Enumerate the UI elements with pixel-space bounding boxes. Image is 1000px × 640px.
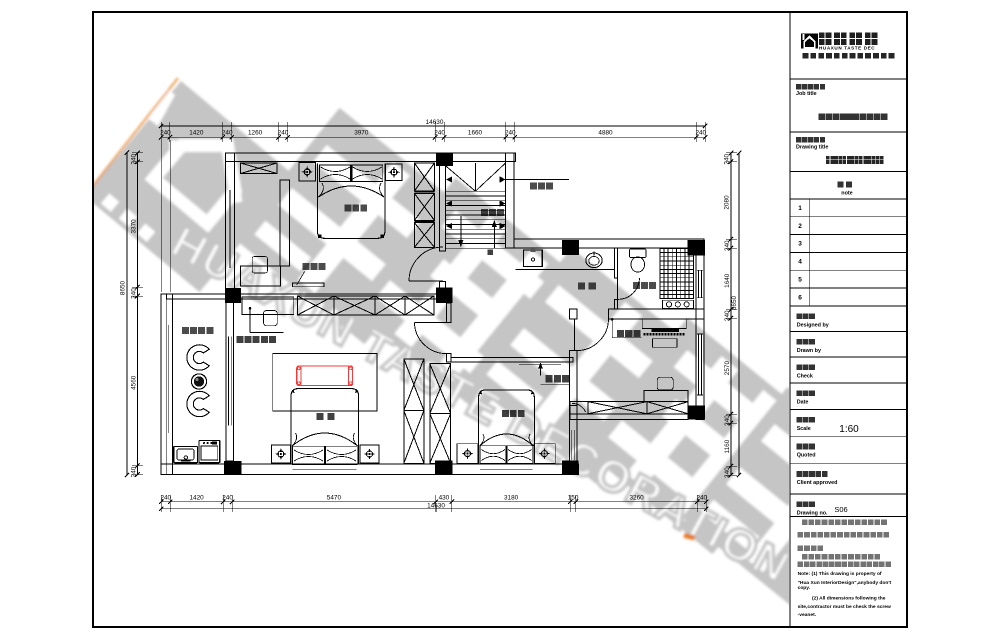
svg-text:Drawn by: Drawn by [797, 348, 821, 354]
svg-text:3260: 3260 [629, 494, 644, 501]
svg-text:1420: 1420 [189, 494, 204, 501]
svg-text:3180: 3180 [504, 494, 519, 501]
svg-text:note: note [841, 191, 852, 197]
svg-text:Designed by: Designed by [797, 323, 829, 329]
svg-text:4560: 4560 [130, 375, 137, 390]
svg-text:240: 240 [130, 466, 137, 477]
svg-text:240: 240 [724, 153, 731, 164]
svg-text:1:60: 1:60 [839, 424, 859, 435]
svg-text:240: 240 [695, 130, 706, 137]
svg-text:Drawing title: Drawing title [796, 145, 828, 151]
svg-text:1260: 1260 [248, 130, 263, 137]
svg-text:2570: 2570 [724, 361, 731, 376]
svg-text:240: 240 [505, 130, 516, 137]
svg-text:site,contractor must be check: site,contractor must be check the screw [798, 604, 891, 610]
svg-text:4: 4 [798, 259, 802, 266]
svg-text:240: 240 [222, 494, 233, 501]
svg-text:5470: 5470 [327, 494, 342, 501]
svg-text:(2) All dimensions following t: (2) All dimensions following the [812, 596, 886, 602]
svg-text:copy.: copy. [798, 586, 811, 591]
svg-text:Drawing no.: Drawing no. [797, 511, 828, 517]
svg-text:S06: S06 [834, 505, 847, 514]
svg-text:Client approved: Client approved [797, 480, 838, 486]
svg-text:1160: 1160 [724, 439, 731, 453]
svg-text:3970: 3970 [354, 130, 369, 137]
svg-text:240: 240 [724, 467, 731, 478]
svg-text:4880: 4880 [598, 130, 613, 137]
svg-text:5: 5 [798, 276, 802, 283]
svg-text:240: 240 [724, 310, 731, 321]
svg-text:1660: 1660 [468, 130, 483, 137]
svg-text:-veanet.: -veanet. [798, 612, 817, 618]
svg-text:Date: Date [797, 399, 809, 405]
svg-text:240: 240 [130, 288, 137, 299]
svg-text:Check: Check [797, 373, 813, 379]
svg-text:1420: 1420 [189, 130, 204, 137]
svg-text:HUAXUN TASTE DEC: HUAXUN TASTE DEC [819, 45, 875, 50]
svg-text:430: 430 [439, 494, 450, 501]
svg-text:14630: 14630 [427, 503, 445, 510]
svg-text:2: 2 [798, 223, 802, 230]
svg-text:"Hua Xun InteriorDesign",anybo: "Hua Xun InteriorDesign",anybody don't [798, 580, 892, 586]
svg-text:6: 6 [798, 294, 802, 301]
svg-text:240: 240 [724, 240, 731, 251]
svg-text:240: 240 [130, 153, 137, 164]
svg-text:Job title: Job title [796, 91, 817, 97]
svg-text:1: 1 [798, 205, 802, 212]
svg-text:Quoted: Quoted [797, 453, 816, 459]
svg-text:14630: 14630 [426, 119, 444, 126]
svg-text:240: 240 [222, 130, 233, 137]
svg-text:8650: 8650 [731, 295, 738, 310]
svg-text:2080: 2080 [724, 195, 731, 210]
svg-text:240: 240 [434, 130, 445, 137]
svg-text:240: 240 [278, 130, 289, 137]
svg-text:Note: (1) This drawing is prop: Note: (1) This drawing is property of [798, 571, 882, 577]
svg-text:150: 150 [568, 494, 579, 501]
svg-text:240: 240 [160, 130, 171, 137]
svg-text:3370: 3370 [130, 219, 137, 234]
svg-text:3: 3 [798, 241, 802, 248]
svg-text:Scale: Scale [797, 426, 811, 432]
svg-text:240: 240 [160, 494, 171, 501]
svg-text:240: 240 [696, 494, 707, 501]
svg-text:8650: 8650 [120, 280, 127, 295]
svg-text:240: 240 [724, 415, 731, 426]
svg-text:1640: 1640 [724, 273, 731, 288]
